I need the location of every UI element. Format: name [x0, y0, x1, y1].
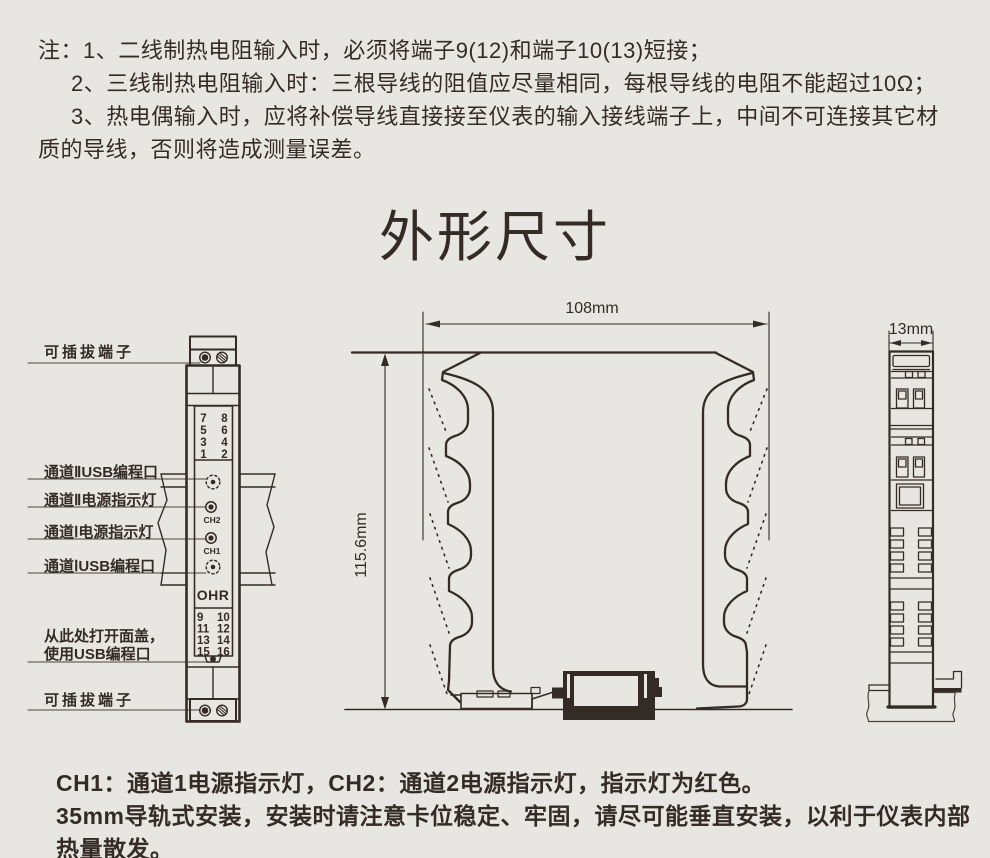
footer-line-2: 35mm导轨式安装，安装时请注意卡位稳定、牢固，请尽可能垂直安装，以利于仪表内部 — [56, 797, 970, 831]
usb-port-ch1-icon — [206, 560, 220, 574]
label-pluggable-terminal-bottom: 可插拔端子 — [44, 689, 134, 710]
arrow-left-icon — [890, 340, 901, 346]
usb-port-ch2-icon — [206, 475, 220, 489]
rail-break-left — [158, 474, 167, 585]
note-line-3: 3、热电偶输入时，应将补偿导线直接接至仪表的输入接线端子上，中间不可连接其它材 — [71, 99, 939, 131]
profile-right — [697, 353, 754, 709]
manual-page: 注：1、二线制热电阻输入时，必须将端子9(12)和端子10(13)短接； 2、三… — [0, 0, 990, 858]
module-profile — [352, 353, 754, 709]
terminal-number: 12 — [217, 624, 230, 636]
terminal-number: 1 — [200, 449, 207, 461]
clip-left-tab — [869, 685, 890, 691]
profile-inner-left — [444, 373, 511, 692]
label-ch2-power-led: 通道Ⅱ电源指示灯 — [44, 489, 156, 510]
rail-clip-side — [869, 672, 962, 693]
width-dimension — [423, 312, 769, 540]
screw-icon — [200, 705, 228, 716]
note-line-4: 质的导线，否则将造成测量误差。 — [38, 132, 376, 164]
label-open-cover-2: 使用USB编程口 — [44, 643, 151, 664]
rail-cross-section — [451, 688, 556, 709]
terminal-number: 7 — [200, 413, 206, 425]
screw-icon — [200, 352, 228, 363]
rail-break-right — [266, 474, 275, 585]
note-line-1: 注：1、二线制热电阻输入时，必须将端子9(12)和端子10(13)短接； — [38, 33, 711, 65]
terminal-number: 13 — [197, 635, 210, 647]
stitch-dots — [429, 389, 767, 694]
label-ch1-usb-port: 通道ⅠUSB编程口 — [44, 555, 155, 576]
terminal-number: 4 — [221, 437, 228, 449]
ch2-text: CH2 — [203, 515, 220, 525]
ch1-text: CH1 — [203, 546, 220, 556]
height-dim-text: 115.6mm — [353, 512, 370, 578]
terminal-number: 16 — [217, 647, 230, 659]
terminal-slots-top — [891, 528, 932, 572]
led-ch2-icon — [206, 502, 216, 512]
terminal-number: 15 — [197, 647, 210, 659]
terminal-number: 6 — [221, 425, 227, 437]
label-ch1-power-led: 通道Ⅰ电源指示灯 — [44, 521, 153, 542]
terminal-number: 9 — [197, 612, 203, 624]
note-line-2: 2、三线制热电阻输入时：三根导线的阻值应尽量相同，每根导线的电阻不能超过10Ω； — [71, 66, 936, 98]
width-dim-text: 108mm — [565, 300, 618, 317]
label-pluggable-terminal-top: 可插拔端子 — [44, 341, 134, 362]
cover-latch-dot — [210, 656, 216, 662]
rail-clip — [552, 671, 662, 720]
terminal-number: 5 — [200, 425, 207, 437]
terminal-number: 2 — [221, 449, 227, 461]
side-view-drawing: 108mm 115.6mm — [340, 288, 800, 760]
led-ch1-icon — [206, 533, 216, 543]
footer-line-1: CH1：通道1电源指示灯，CH2：通道2电源指示灯，指示灯为红色。 — [56, 764, 765, 798]
arrow-down-icon — [381, 697, 389, 710]
label-ch2-usb-port: 通道ⅡUSB编程口 — [44, 461, 158, 482]
profile-left — [442, 353, 480, 702]
page-title: 外形尺寸 — [0, 192, 990, 272]
arrow-right-icon — [921, 340, 932, 346]
clip-right-tab — [936, 672, 962, 689]
terminal-numbers-top: 7 8 5 6 3 4 1 2 — [200, 413, 228, 461]
brand-logo: OHR — [197, 587, 230, 603]
arrow-left-icon — [426, 321, 440, 328]
terminal-number: 14 — [217, 635, 230, 647]
module-outline — [187, 337, 240, 722]
arrow-up-icon — [381, 354, 389, 367]
depth-dim-text: 13mm — [889, 321, 933, 338]
height-dimension — [381, 354, 389, 710]
terminal-number: 10 — [217, 612, 230, 624]
din-rail — [158, 474, 275, 585]
end-view-drawing: 13mm — [840, 288, 990, 760]
clip-right-tab — [649, 687, 662, 697]
terminal-numbers-bottom: 9 10 11 12 13 14 15 16 — [197, 612, 230, 659]
terminal-number: 11 — [197, 624, 210, 636]
terminal-number: 8 — [221, 413, 228, 425]
module-outline — [888, 352, 935, 708]
terminal-number: 3 — [200, 437, 206, 449]
footer-line-3: 热量散发。 — [56, 830, 174, 858]
terminal-slots-bottom — [891, 602, 932, 646]
arrow-right-icon — [753, 321, 767, 328]
